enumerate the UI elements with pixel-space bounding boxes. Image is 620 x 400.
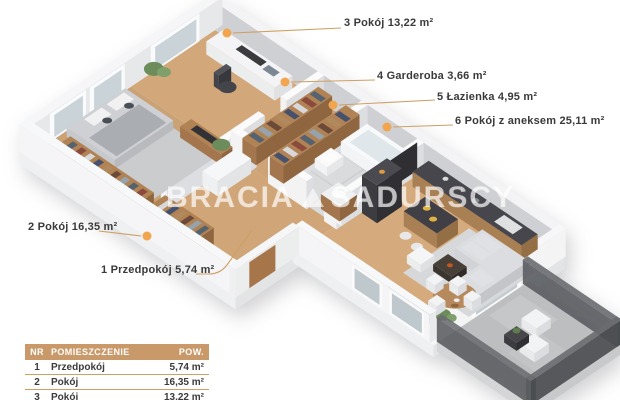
brand-triangle-logo-icon (302, 188, 324, 207)
legend-row-2: 2Pokój16,35 m² (25, 375, 209, 390)
legend-cell: Przedpokój (49, 362, 142, 373)
watermark-word-2: SADURSCY (331, 181, 515, 215)
watermark-word-1: BRACIA (166, 181, 295, 215)
legend-cell: Pokój (49, 377, 142, 388)
room-label-3: 3 Pokój 13,22 m² (344, 17, 433, 29)
legend-table-header: NR POMIESZCZENIE POW. (25, 344, 209, 360)
watermark: BRACIA SADURSCY (166, 181, 515, 215)
legend-row-1: 1Przedpokój5,74 m² (25, 360, 209, 375)
room-label-4: 4 Garderoba 3,66 m² (377, 70, 487, 82)
room-label-6: 6 Pokój z aneksem 25,11 m² (455, 115, 605, 127)
legend-row-3: 3Pokój13,22 m² (25, 390, 209, 400)
legend-cell: 5,74 m² (142, 362, 209, 373)
legend-cell: Pokój (49, 392, 142, 400)
legend-header-room: POMIESZCZENIE (49, 347, 142, 357)
legend-header-nr: NR (25, 347, 49, 357)
legend-header-area: POW. (142, 347, 209, 357)
legend-table: NR POMIESZCZENIE POW. 1Przedpokój5,74 m²… (25, 344, 209, 400)
room-label-5: 5 Łazienka 4,95 m² (437, 91, 537, 103)
room-label-2: 2 Pokój 16,35 m² (28, 221, 117, 233)
legend-cell: 3 (25, 392, 49, 400)
legend-cell: 16,35 m² (142, 377, 209, 388)
floor-plan-page: BRACIA SADURSCY 3 Pokój 13,22 m² 4 Garde… (0, 0, 620, 400)
legend-cell: 1 (25, 362, 49, 373)
legend-cell: 2 (25, 377, 49, 388)
legend-cell: 13,22 m² (142, 392, 209, 400)
room-label-1: 1 Przedpokój 5,74 m² (101, 264, 214, 276)
